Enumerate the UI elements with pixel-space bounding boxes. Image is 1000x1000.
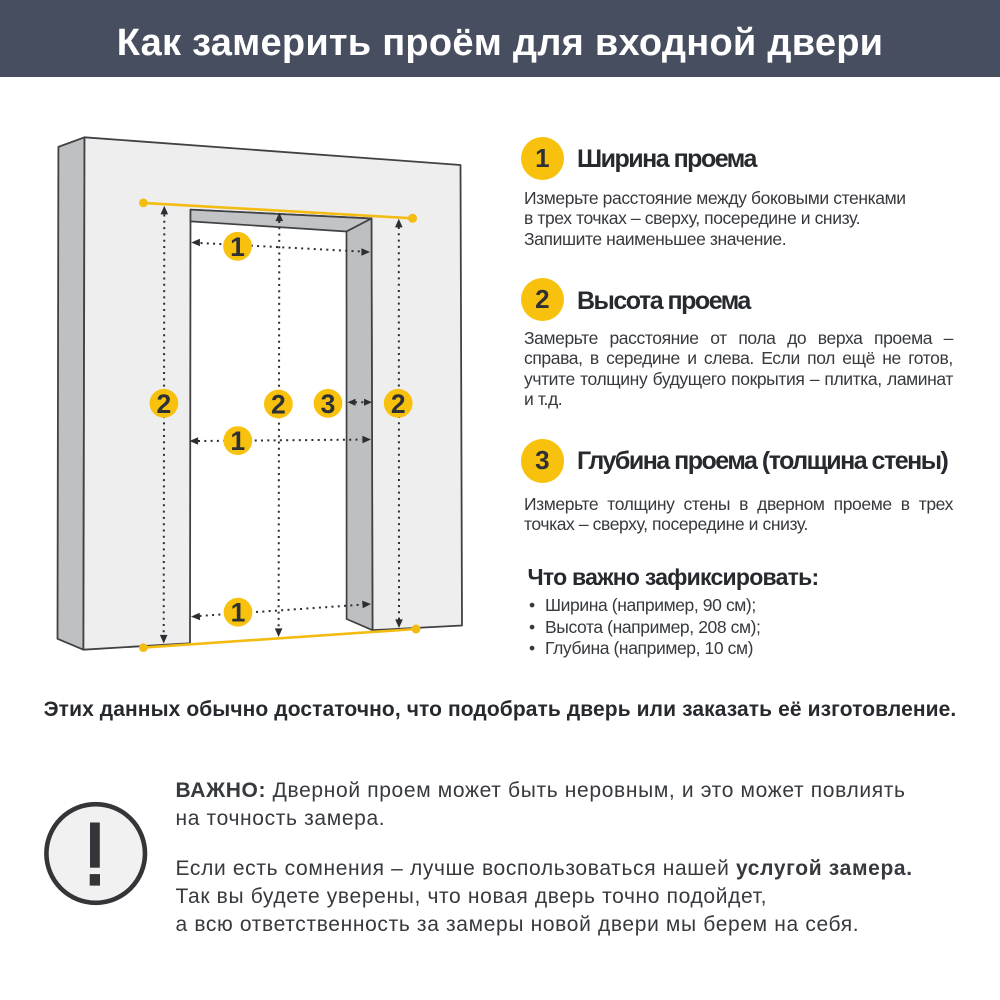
svg-text:3: 3: [321, 389, 336, 419]
svg-text:2: 2: [271, 390, 286, 420]
svg-text:1: 1: [231, 598, 246, 628]
svg-text:1: 1: [230, 426, 245, 456]
svg-text:1: 1: [230, 232, 245, 262]
svg-text:2: 2: [391, 389, 406, 419]
svg-text:2: 2: [157, 389, 172, 419]
